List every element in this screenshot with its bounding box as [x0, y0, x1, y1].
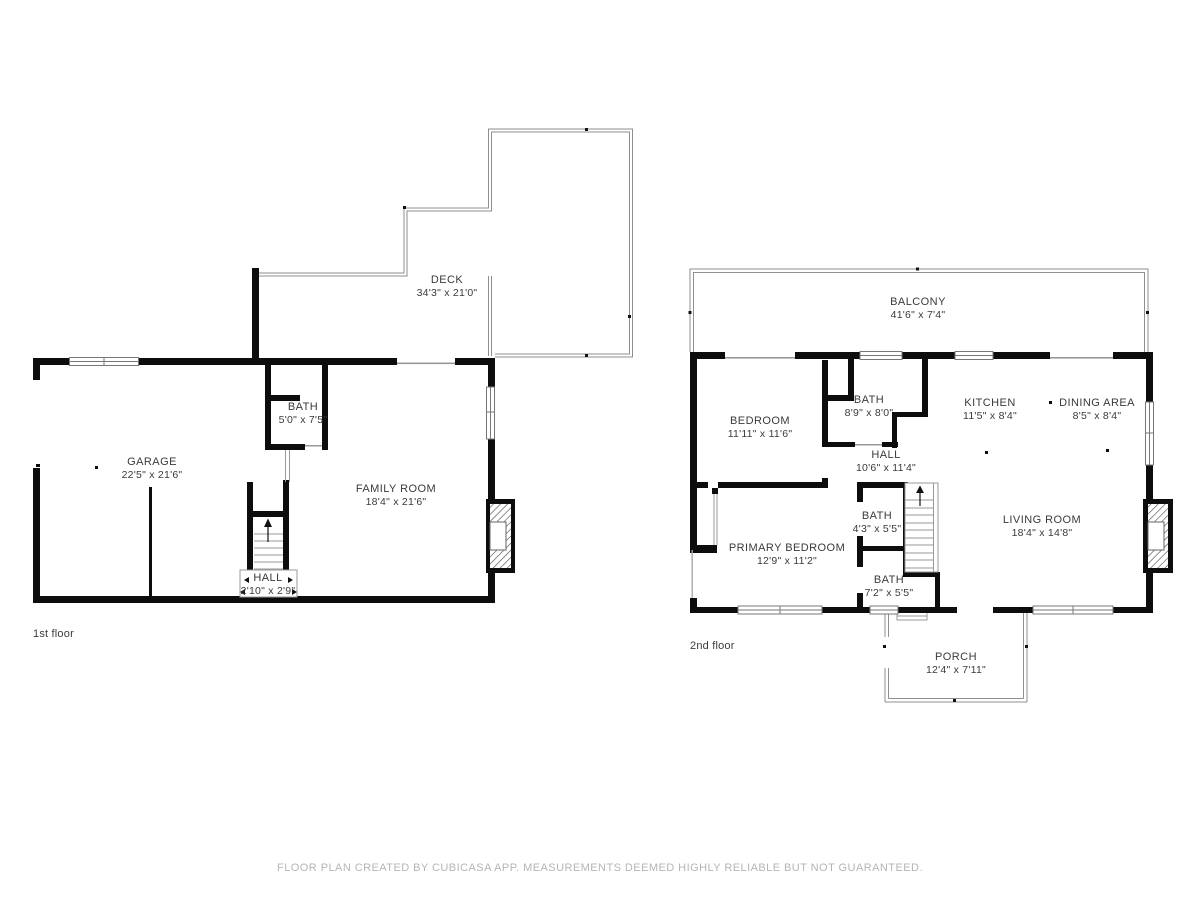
room-name: GARAGE	[122, 456, 183, 469]
room-label-deck: DECK 34'3" x 21'0"	[417, 274, 478, 300]
room-name: HALL	[856, 449, 916, 462]
room-name: LIVING ROOM	[1003, 514, 1081, 527]
deck-wall	[252, 268, 259, 360]
room-dims: 41'6" x 7'4"	[890, 309, 946, 322]
floorplan-canvas	[0, 0, 1200, 900]
room-dims: 18'4" x 21'6"	[356, 496, 436, 509]
room-name: BEDROOM	[728, 415, 793, 428]
fireplace-icon	[1143, 499, 1173, 573]
footer-disclaimer: FLOOR PLAN CREATED BY CUBICASA APP. MEAS…	[0, 862, 1200, 874]
room-name: DINING AREA	[1059, 397, 1135, 410]
floorplan-page: DECK 34'3" x 21'0" BATH 5'0" x 7'5" GARA…	[0, 0, 1200, 900]
room-dims: 34'3" x 21'0"	[417, 287, 478, 300]
room-dims: 7'2" x 5'5"	[865, 587, 914, 600]
room-label-primary-bedroom: PRIMARY BEDROOM 12'9" x 11'2"	[729, 542, 845, 568]
staircase	[905, 483, 938, 572]
room-label-hall-2f: HALL 10'6" x 11'4"	[856, 449, 916, 475]
room-name: KITCHEN	[963, 397, 1017, 410]
room-dims: 22'5" x 21'6"	[122, 469, 183, 482]
room-dims: 10'6" x 11'4"	[856, 462, 916, 475]
room-dims: 18'4" x 14'8"	[1003, 527, 1081, 540]
room-dims: 12'9" x 11'2"	[729, 555, 845, 568]
second-floor-label: 2nd floor	[690, 640, 735, 652]
room-label-garage: GARAGE 22'5" x 21'6"	[122, 456, 183, 482]
first-floor-walls	[33, 358, 495, 603]
room-dims: 2'10" x 2'9"	[241, 585, 296, 598]
first-floor-label: 1st floor	[33, 628, 74, 640]
room-name: BALCONY	[890, 296, 946, 309]
deck-outline	[259, 128, 631, 357]
room-label-bath-mid: BATH 4'3" x 5'5"	[853, 510, 902, 536]
room-name: HALL	[241, 572, 296, 585]
room-dims: 5'0" x 7'5"	[279, 414, 328, 427]
room-label-family-room: FAMILY ROOM 18'4" x 21'6"	[356, 483, 436, 509]
room-name: DECK	[417, 274, 478, 287]
room-name: BATH	[279, 401, 328, 414]
room-label-hall-1f: HALL 2'10" x 2'9"	[241, 572, 296, 598]
room-name: BATH	[865, 574, 914, 587]
room-name: PRIMARY BEDROOM	[729, 542, 845, 555]
room-label-porch: PORCH 12'4" x 7'11"	[926, 651, 986, 677]
room-label-dining-area: DINING AREA 8'5" x 8'4"	[1059, 397, 1135, 423]
second-floor-plan	[689, 268, 1174, 703]
room-label-bedroom: BEDROOM 11'11" x 11'6"	[728, 415, 793, 441]
room-dims: 12'4" x 7'11"	[926, 664, 986, 677]
room-label-kitchen: KITCHEN 11'5" x 8'4"	[963, 397, 1017, 423]
room-label-living-room: LIVING ROOM 18'4" x 14'8"	[1003, 514, 1081, 540]
room-dims: 11'11" x 11'6"	[728, 428, 793, 441]
room-label-balcony: BALCONY 41'6" x 7'4"	[890, 296, 946, 322]
room-dims: 8'9" x 8'0"	[845, 407, 894, 420]
room-name: FAMILY ROOM	[356, 483, 436, 496]
room-dims: 11'5" x 8'4"	[963, 410, 1017, 423]
room-label-bath-lower: BATH 7'2" x 5'5"	[865, 574, 914, 600]
room-dims: 8'5" x 8'4"	[1059, 410, 1135, 423]
first-floor-plan	[33, 128, 631, 603]
room-label-bath-upper: BATH 8'9" x 8'0"	[845, 394, 894, 420]
room-dims: 4'3" x 5'5"	[853, 523, 902, 536]
room-name: BATH	[845, 394, 894, 407]
fireplace-icon	[486, 499, 515, 573]
room-name: BATH	[853, 510, 902, 523]
room-label-bath-1f: BATH 5'0" x 7'5"	[279, 401, 328, 427]
staircase	[254, 519, 283, 570]
room-name: PORCH	[926, 651, 986, 664]
